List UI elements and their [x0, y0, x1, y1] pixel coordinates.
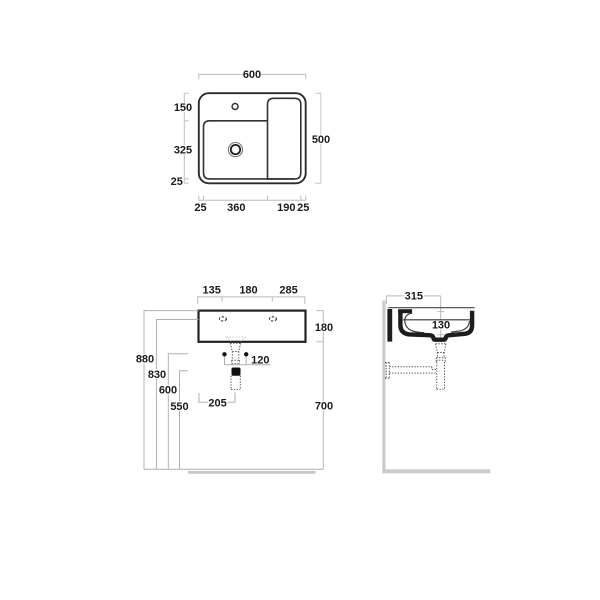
svg-text:135: 135 — [203, 285, 221, 297]
svg-text:25: 25 — [194, 202, 206, 214]
svg-text:600: 600 — [159, 384, 177, 396]
svg-text:25: 25 — [171, 176, 183, 188]
svg-text:25: 25 — [297, 202, 309, 214]
svg-text:550: 550 — [170, 401, 188, 413]
svg-text:830: 830 — [148, 369, 166, 381]
svg-text:880: 880 — [136, 353, 154, 365]
svg-text:600: 600 — [243, 69, 261, 81]
svg-text:500: 500 — [312, 134, 330, 146]
svg-text:325: 325 — [174, 145, 192, 157]
svg-text:700: 700 — [315, 401, 333, 413]
svg-text:150: 150 — [174, 102, 192, 114]
svg-text:120: 120 — [251, 354, 269, 366]
svg-text:285: 285 — [279, 285, 297, 297]
svg-text:190: 190 — [277, 202, 295, 214]
svg-text:180: 180 — [239, 285, 257, 297]
svg-text:130: 130 — [432, 320, 450, 332]
svg-text:360: 360 — [227, 202, 245, 214]
svg-text:315: 315 — [405, 291, 423, 303]
svg-text:180: 180 — [315, 322, 333, 334]
svg-text:205: 205 — [208, 398, 226, 410]
